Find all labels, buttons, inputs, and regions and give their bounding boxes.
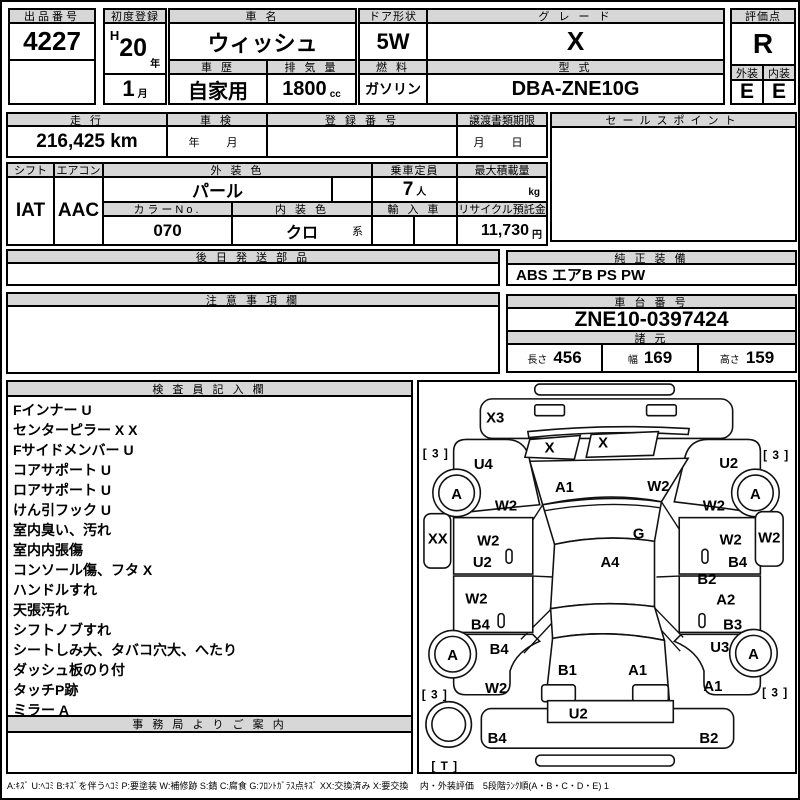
damage-code: W2 (495, 499, 517, 515)
length-label: 長さ (527, 351, 547, 366)
damage-code: W2 (703, 499, 725, 515)
damage-code: B4 (728, 555, 748, 571)
capacity-value: 7 (403, 179, 414, 201)
inspector-note-line: 天張汚れ (8, 600, 411, 620)
capacity-value-cell: 7 人 (371, 176, 458, 203)
dimension-width-cell: 幅 169 (601, 343, 699, 373)
ext-color-value: パール (102, 176, 333, 203)
import-cell-2 (413, 215, 458, 246)
inspector-note-line: ロアサポート U (8, 480, 411, 500)
tire-depth-label: [ 3 ] (423, 446, 449, 460)
tire-depth-label: [ 3 ] (763, 448, 789, 462)
door-value: 5W (358, 22, 428, 61)
damage-code: A4 (600, 555, 620, 571)
roof-shape (551, 538, 655, 609)
first-reg-month: 1 (122, 76, 134, 102)
rear-lip-shape (536, 755, 675, 766)
era-code: H (110, 24, 119, 43)
recycle-value-cell: 11,730 円 (456, 215, 548, 246)
import-cell-1 (371, 215, 415, 246)
damage-code: W2 (465, 592, 487, 608)
headlight-right-shape (586, 432, 658, 458)
auction-sheet: 出品番号 4227 初度登録 H 20 年 1 月 車 名 ウィッシュ 車 歴 … (0, 0, 800, 800)
inspector-notes: Fインナー U センターピラー X X Fサイドメンバー U コアサポート U … (6, 395, 413, 717)
inspector-note-line: ダッシュ板のり付 (8, 660, 411, 680)
bumper-vent-left (535, 405, 565, 416)
door-handle-rear-right (699, 614, 705, 628)
int-color-value-cell: クロ 系 (231, 215, 373, 246)
dimension-length-cell: 長さ 456 (506, 343, 603, 373)
int-color-suffix: 系 (352, 223, 363, 239)
deadline-value: 月 日 (456, 125, 548, 158)
reg-no-value (266, 125, 458, 158)
spare-tire-inner (432, 708, 466, 742)
ext-color-sub-cell (331, 176, 373, 203)
office-value (6, 731, 413, 774)
damage-code: B3 (723, 617, 742, 633)
door-gap-right-line (656, 576, 679, 577)
inspector-note-line: コンソール傷、フタ X (8, 560, 411, 580)
damage-code: A1 (703, 679, 722, 695)
taillight-left-shape (542, 685, 576, 702)
grade-value: X (426, 22, 725, 61)
inspector-note-line: シートしみ大、タバコ穴大、へたり (8, 640, 411, 660)
damage-code: X3 (486, 411, 504, 427)
sales-point-value (550, 126, 797, 242)
door-handle-rear-left (498, 614, 504, 628)
damage-code: B1 (558, 663, 577, 679)
damage-code: B4 (490, 642, 510, 658)
capacity-unit: 人 (416, 183, 426, 201)
width-label: 幅 (628, 351, 638, 366)
recycle-value: 11,730 (481, 222, 529, 240)
inspector-note-line: 室内内張傷 (8, 540, 411, 560)
model-code-value: DBA-ZNE10G (426, 73, 725, 105)
spare-tire-label: [ T ] (431, 759, 458, 772)
damage-code: A (750, 487, 761, 503)
recycle-unit: 円 (532, 226, 542, 244)
damage-code: U3 (710, 640, 729, 656)
max-load-unit: kg (528, 187, 540, 201)
displacement-value: 1800 (282, 78, 327, 101)
mileage-value: 216,425 km (6, 125, 168, 158)
rear-panel-shape (548, 701, 674, 723)
damage-code: B2 (697, 572, 716, 588)
notes-value (6, 305, 500, 374)
door-handle-front-right (702, 549, 708, 563)
year-unit: 年 (150, 55, 160, 73)
tire-depth-label: [ 3 ] (762, 686, 788, 700)
damage-code: G (633, 526, 645, 542)
damage-code: A2 (716, 593, 735, 609)
inspector-note-line: Fサイドメンバー U (8, 440, 411, 460)
chassis-value: ZNE10-0397424 (506, 307, 797, 332)
interior-value: E (762, 79, 796, 105)
length-value: 456 (553, 348, 581, 368)
front-lip-shape (535, 384, 675, 395)
damage-code: B2 (699, 731, 718, 747)
damage-code: W2 (647, 479, 669, 495)
dimension-height-cell: 高さ 159 (697, 343, 797, 373)
color-no-value: 070 (102, 215, 233, 246)
aircon-value: AAC (53, 176, 104, 246)
shift-value: IAT (6, 176, 55, 246)
score-value: R (730, 22, 796, 66)
max-load-value-cell: kg (456, 176, 548, 203)
first-reg-month-cell: 1 月 (103, 73, 167, 105)
history-value: 自家用 (168, 73, 268, 105)
damage-code: W2 (758, 530, 780, 546)
height-value: 159 (746, 348, 774, 368)
door-gap-left-line (533, 576, 554, 577)
damage-code: U2 (719, 456, 738, 472)
width-value: 169 (644, 348, 672, 368)
damage-code: U2 (473, 555, 492, 571)
damage-code: A (451, 487, 462, 503)
height-label: 高さ (720, 351, 740, 366)
month-unit: 月 (138, 85, 148, 103)
car-top-view: X3 [ 3 ] [ 3 ] U4 U2 X X A1 W2 A A W2 W2… (419, 382, 795, 772)
auction-no-value: 4227 (8, 22, 96, 61)
shaken-value: 年 月 (166, 125, 268, 158)
damage-code: W2 (477, 533, 499, 549)
damage-code: X (598, 435, 608, 451)
inspector-note-line: コアサポート U (8, 460, 411, 480)
damage-code: XX (428, 531, 448, 547)
damage-diagram: X3 [ 3 ] [ 3 ] U4 U2 X X A1 W2 A A W2 W2… (417, 380, 797, 774)
inspector-note-line: 室内臭い、汚れ (8, 520, 411, 540)
damage-code: U2 (569, 706, 588, 722)
damage-code: U4 (474, 457, 494, 473)
taillight-right-shape (633, 685, 669, 702)
car-name-value: ウィッシュ (168, 22, 357, 61)
inspector-note-line: シフトノブすれ (8, 620, 411, 640)
auction-no-empty-cell (8, 59, 96, 105)
oem-equipment-value: ABS エアB PS PW (506, 263, 797, 286)
tire-depth-label: [ 3 ] (422, 688, 448, 702)
damage-code: A (748, 647, 759, 663)
fuel-value: ガソリン (358, 73, 428, 105)
displacement-value-cell: 1800 cc (266, 73, 357, 105)
damage-code: W2 (485, 681, 507, 697)
damage-code: B4 (471, 617, 491, 633)
damage-code: B4 (488, 731, 508, 747)
inspector-note-line: タッチP跡 (8, 680, 411, 700)
later-parts-value (6, 262, 500, 286)
damage-code-legend: A:ｷｽﾞ U:ﾍｺﾐ B:ｷｽﾞを伴うﾍｺﾐ P:要塗装 W:補修跡 S:錆 … (7, 779, 797, 792)
damage-code: W2 (720, 532, 742, 548)
damage-code: A (447, 648, 458, 664)
damage-code: A1 (628, 663, 647, 679)
bumper-vent-right (647, 405, 677, 416)
inspector-note-line: けん引フック U (8, 500, 411, 520)
damage-code: X (545, 440, 555, 456)
inspector-note-line: Fインナー U (8, 400, 411, 420)
damage-code: A1 (555, 480, 574, 496)
int-color-value: クロ (286, 219, 318, 243)
first-reg-year: 20 (119, 34, 147, 63)
inspector-note-line: センターピラー X X (8, 420, 411, 440)
door-handle-front-left (506, 549, 512, 563)
inspector-note-line: ハンドルすれ (8, 580, 411, 600)
displacement-unit: cc (330, 89, 341, 103)
first-reg-year-cell: H 20 年 (103, 22, 167, 75)
exterior-value: E (730, 79, 764, 105)
